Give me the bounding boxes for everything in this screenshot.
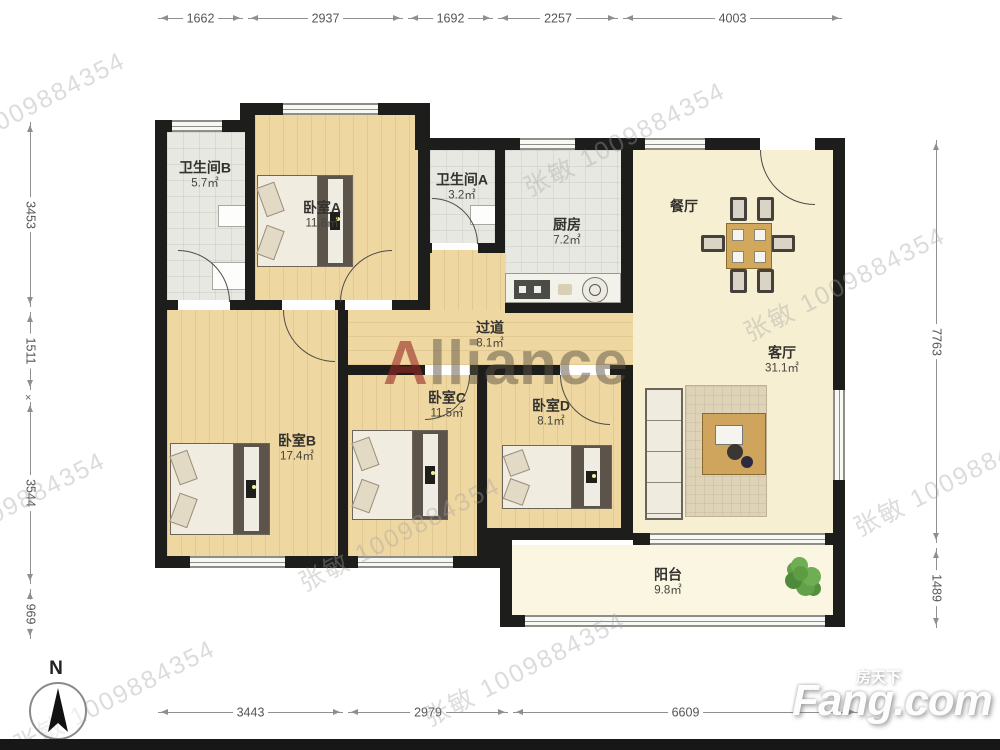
dim-top-2: 2937 — [248, 18, 403, 19]
dim-value: 1489 — [930, 570, 944, 606]
room-label-dining: 餐厅 — [670, 197, 698, 215]
room-label-bedroom-a: 卧室A11.8㎡ — [303, 198, 341, 231]
north-arrow-icon — [45, 688, 71, 734]
room-name: 卫生间B — [179, 159, 231, 175]
wall — [495, 138, 505, 250]
room-label-bedroom-d: 卧室D8.1㎡ — [532, 396, 570, 429]
bed-mattress — [171, 444, 234, 534]
bed-pillow — [503, 478, 530, 506]
wall — [230, 300, 282, 310]
dim-left-2: 1511 — [30, 312, 31, 390]
bed-pillow — [351, 479, 379, 514]
tv-icon — [246, 480, 256, 498]
plate-icon — [754, 229, 766, 241]
dim-top-3: 1692 — [408, 18, 493, 19]
bed-pillow — [169, 450, 198, 486]
bed-pillow — [503, 449, 530, 477]
room-name: 卧室B — [278, 432, 316, 448]
dim-left-4: 969 — [30, 589, 31, 639]
room-label-bedroom-b: 卧室B17.4㎡ — [278, 431, 316, 464]
decor-icon — [727, 444, 743, 460]
dim-top-4: 2257 — [498, 18, 618, 19]
room-label-bathroom-b: 卫生间B5.7㎡ — [179, 158, 231, 191]
dim-value: 2937 — [308, 11, 344, 25]
room-area: 11.5㎡ — [428, 407, 466, 422]
room-area: 31.1㎡ — [765, 362, 799, 377]
fang-logo: 房天下 Fang.com — [790, 664, 998, 744]
decor-icon — [715, 425, 743, 445]
wardrobe-icon — [234, 444, 269, 534]
bed-pillow — [351, 437, 379, 472]
room-label-balcony: 阳台9.8㎡ — [654, 565, 682, 598]
dining-chair-icon — [701, 235, 725, 252]
alliance-watermark: Alliance — [383, 333, 629, 395]
bed-pillow — [169, 493, 198, 529]
window — [283, 103, 378, 115]
window — [833, 390, 845, 480]
alliance-rest: lliance — [429, 329, 629, 398]
wall — [487, 540, 500, 556]
bed-pillow — [256, 225, 284, 260]
window — [172, 120, 222, 132]
sliding-door — [650, 533, 825, 545]
dim-value: 4003 — [715, 11, 751, 25]
dim-bottom-1: 3443 — [158, 712, 343, 713]
room-name: 卧室D — [532, 397, 570, 413]
agent-watermark: 张敏 1009884354 — [847, 411, 1000, 544]
tv-icon — [586, 471, 597, 483]
dim-value: 6609 — [668, 705, 704, 719]
wall — [338, 310, 348, 568]
wall — [833, 138, 845, 545]
wall — [705, 138, 760, 150]
plate-icon — [732, 251, 744, 263]
kitchen-counter-icon — [505, 273, 621, 303]
fang-logo-en: Fang.com — [792, 676, 992, 726]
room-label-bathroom-a: 卫生间A3.2㎡ — [436, 170, 488, 203]
window — [190, 556, 285, 568]
dining-chair-icon — [771, 235, 795, 252]
wall — [825, 533, 845, 545]
compass-circle — [29, 682, 87, 740]
dim-value: 3453 — [24, 197, 38, 233]
wall — [392, 300, 430, 310]
dining-chair-icon — [730, 269, 747, 293]
wall — [418, 115, 430, 300]
wall — [505, 303, 633, 313]
stove-icon — [582, 277, 608, 303]
plate-icon — [754, 251, 766, 263]
north-compass: N — [26, 658, 96, 744]
dim-value: 7763 — [930, 324, 944, 360]
bathroom-fixture — [470, 205, 498, 225]
dining-chair-icon — [730, 197, 747, 221]
dining-chair-icon — [757, 197, 774, 221]
dim-value: 1511 — [24, 334, 38, 369]
room-area: 11.8㎡ — [303, 217, 341, 232]
room-name: 厨房 — [553, 216, 581, 232]
bed-icon-bedroom-b — [170, 443, 270, 535]
wall — [245, 120, 255, 310]
wall — [500, 540, 512, 627]
sofa-icon — [645, 388, 683, 520]
dim-value: 2257 — [540, 11, 576, 25]
room-area: 7.2㎡ — [553, 234, 581, 249]
dim-left-1: 3453 — [30, 122, 31, 307]
decor-icon — [741, 456, 753, 468]
agent-watermark: 张敏 1009884354 — [0, 441, 111, 574]
wall — [155, 300, 178, 310]
dining-chair-icon — [757, 269, 774, 293]
wall — [425, 243, 432, 253]
dining-table-icon — [726, 223, 772, 269]
dim-top-1: 1662 — [158, 18, 243, 19]
wall — [487, 528, 633, 540]
bed-mattress — [353, 431, 413, 519]
room-area: 9.8㎡ — [654, 584, 682, 599]
wall — [155, 120, 167, 568]
wall — [621, 138, 633, 313]
dim-value: 3443 — [233, 705, 269, 719]
north-label: N — [26, 658, 86, 680]
bottom-bar — [0, 739, 1000, 750]
alliance-initial: A — [383, 329, 429, 398]
dim-top-5: 4003 — [623, 18, 842, 19]
room-name: 卧室A — [303, 199, 341, 215]
room-name: 客厅 — [768, 344, 796, 360]
room-label-kitchen: 厨房7.2㎡ — [553, 215, 581, 248]
bed-pillow — [256, 182, 284, 217]
sink-icon — [514, 280, 550, 299]
bed-mattress — [503, 446, 572, 508]
hallway-floor-2 — [430, 250, 505, 310]
wall — [633, 533, 650, 545]
room-name: 卫生间A — [436, 171, 488, 187]
dim-value: 969 — [24, 600, 38, 629]
dim-value: 1662 — [183, 11, 219, 25]
dim-right-2: 1489 — [936, 548, 937, 628]
room-area: 3.2㎡ — [436, 189, 488, 204]
agent-watermark: 张敏 1009884354 — [0, 41, 131, 174]
wardrobe-icon — [572, 446, 611, 508]
room-area: 8.1㎡ — [532, 415, 570, 430]
coffee-table-icon — [702, 413, 766, 475]
room-area: 17.4㎡ — [278, 450, 316, 465]
floor-plan-image: 卫生间B5.7㎡ 卧室A11.8㎡ 卫生间A3.2㎡ 厨房7.2㎡ 餐厅 客厅3… — [0, 0, 1000, 750]
bed-icon-bedroom-d — [502, 445, 612, 509]
room-name: 餐厅 — [670, 198, 698, 214]
room-name: 阳台 — [654, 566, 682, 582]
room-label-living: 客厅31.1㎡ — [765, 343, 799, 376]
plate-icon — [732, 229, 744, 241]
room-area: 5.7㎡ — [179, 177, 231, 192]
wall — [478, 243, 505, 253]
plant-icon — [793, 566, 808, 581]
decor-icon — [558, 284, 572, 295]
tv-icon — [425, 466, 434, 484]
dim-value: 1692 — [433, 11, 469, 25]
wall — [425, 138, 520, 150]
